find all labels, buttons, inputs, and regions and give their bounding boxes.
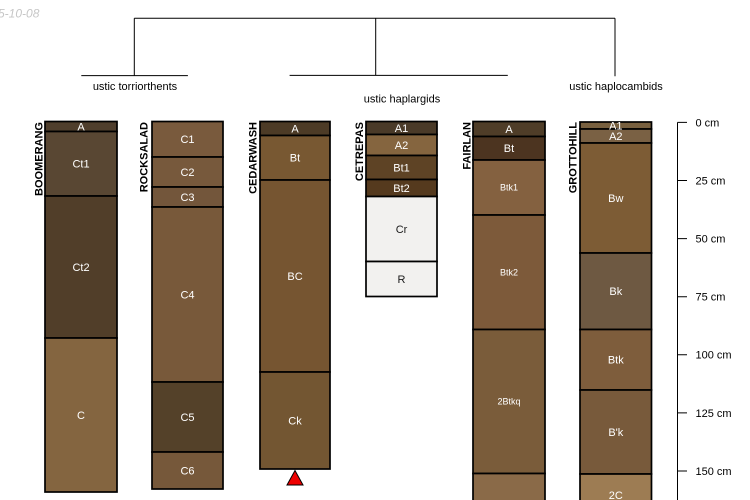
- svg-text:CETREPAS: CETREPAS: [354, 122, 366, 181]
- svg-text:CEDARWASH: CEDARWASH: [248, 122, 260, 194]
- svg-text:Bt: Bt: [504, 143, 514, 155]
- svg-text:A2: A2: [609, 131, 622, 143]
- svg-text:C2: C2: [180, 167, 194, 179]
- svg-text:Ck: Ck: [288, 415, 302, 427]
- svg-text:GROTTOHILL: GROTTOHILL: [568, 122, 580, 194]
- svg-text:Btk: Btk: [608, 355, 624, 367]
- svg-text:ustic torriorthents: ustic torriorthents: [93, 81, 178, 93]
- svg-text:Ct2: Ct2: [72, 262, 89, 274]
- svg-text:A2: A2: [395, 140, 408, 152]
- svg-text:A1: A1: [395, 123, 408, 135]
- svg-text:Btk1: Btk1: [500, 183, 518, 193]
- svg-text:ustic haplocambids: ustic haplocambids: [569, 81, 663, 93]
- svg-text:C1: C1: [180, 134, 194, 146]
- svg-text:0 cm: 0 cm: [696, 117, 720, 129]
- svg-text:Ct1: Ct1: [72, 159, 89, 171]
- svg-text:2Btkq: 2Btkq: [497, 397, 520, 407]
- svg-text:5-10-08: 5-10-08: [0, 6, 40, 20]
- svg-text:50 cm: 50 cm: [696, 234, 726, 246]
- svg-text:75 cm: 75 cm: [696, 292, 726, 304]
- svg-text:Bw: Bw: [608, 193, 623, 205]
- svg-text:Bt1: Bt1: [393, 162, 410, 174]
- svg-text:Bk: Bk: [609, 286, 622, 298]
- svg-text:A: A: [77, 121, 85, 133]
- svg-text:Btk2: Btk2: [500, 267, 518, 277]
- svg-text:A: A: [291, 123, 299, 135]
- svg-text:FAIRLAN: FAIRLAN: [462, 122, 474, 170]
- svg-text:C4: C4: [180, 289, 194, 301]
- svg-text:Cr: Cr: [396, 224, 408, 236]
- svg-text:2C: 2C: [609, 490, 623, 500]
- svg-text:Bt: Bt: [290, 153, 300, 165]
- svg-text:ROCKSALAD: ROCKSALAD: [139, 122, 151, 192]
- svg-text:BOOMERANG: BOOMERANG: [34, 122, 46, 196]
- svg-text:Bt2: Bt2: [393, 183, 410, 195]
- svg-text:125 cm: 125 cm: [696, 408, 732, 420]
- svg-text:B'k: B'k: [608, 427, 623, 439]
- svg-text:C5: C5: [180, 412, 194, 424]
- svg-text:100 cm: 100 cm: [696, 350, 732, 362]
- svg-text:ustic haplargids: ustic haplargids: [364, 94, 441, 106]
- svg-text:R: R: [398, 274, 406, 286]
- svg-text:C3: C3: [180, 192, 194, 204]
- svg-text:BC: BC: [287, 271, 302, 283]
- svg-text:C6: C6: [180, 465, 194, 477]
- svg-text:25 cm: 25 cm: [696, 175, 726, 187]
- svg-text:A: A: [505, 124, 513, 136]
- svg-text:150 cm: 150 cm: [696, 466, 732, 478]
- svg-text:C: C: [77, 410, 85, 422]
